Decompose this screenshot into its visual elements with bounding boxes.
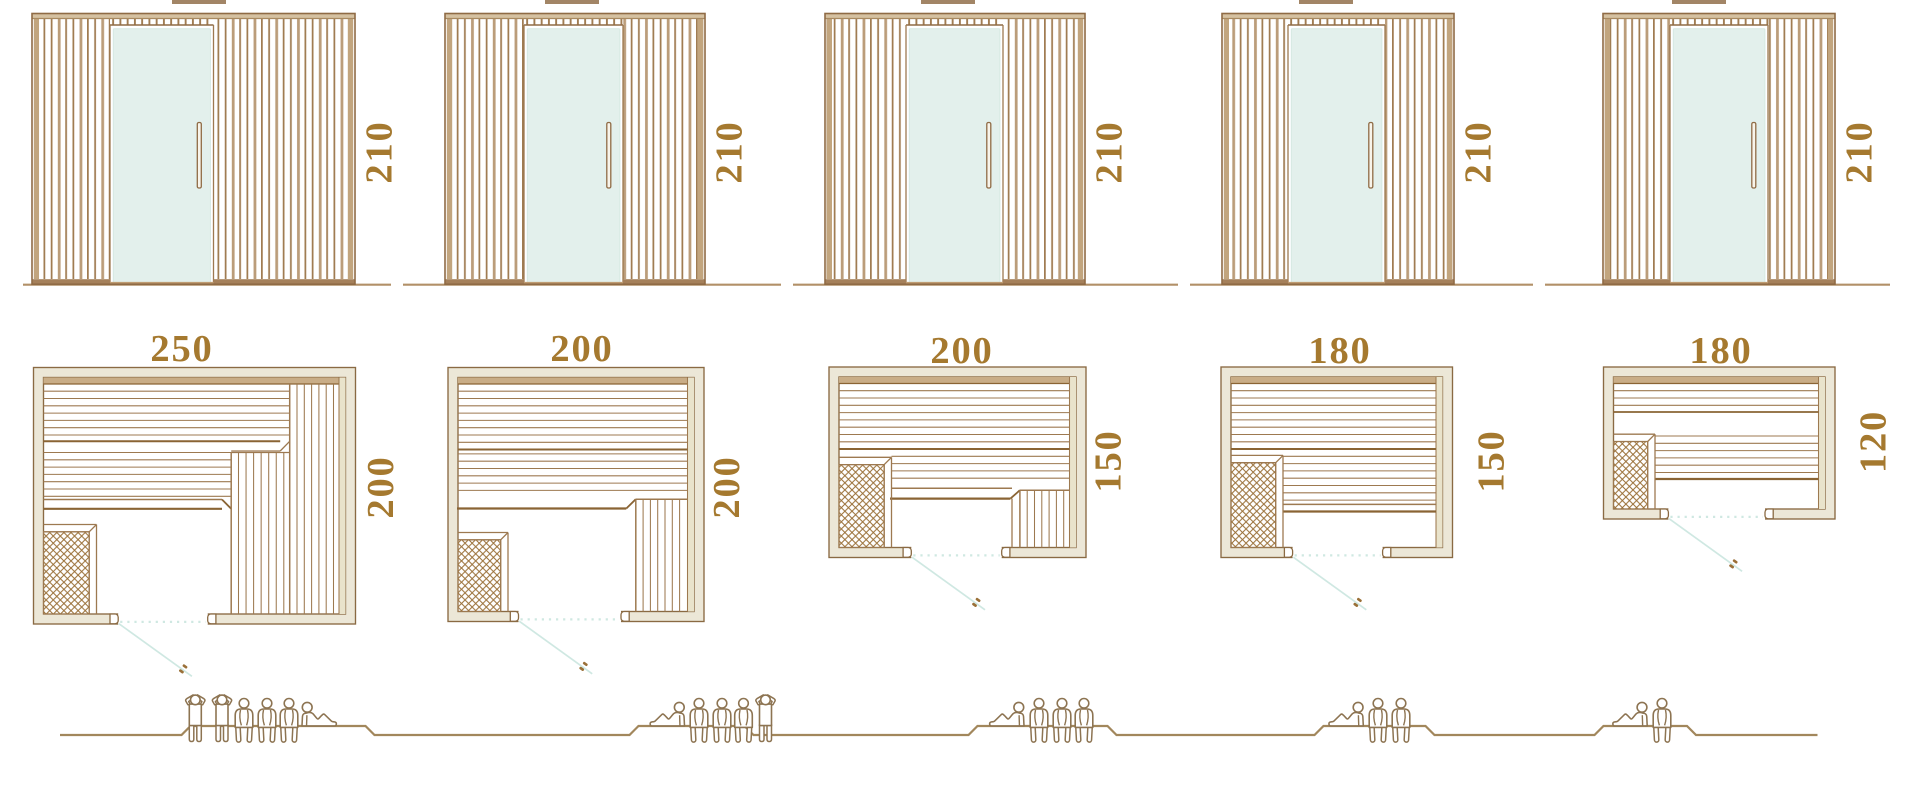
svg-text:180: 180 [1689, 330, 1752, 372]
svg-text:210: 210 [358, 120, 400, 183]
svg-text:250: 250 [150, 328, 213, 370]
svg-text:210: 210 [1838, 120, 1880, 183]
svg-text:150: 150 [1087, 429, 1129, 492]
svg-text:200: 200 [706, 455, 748, 518]
svg-text:210: 210 [1457, 120, 1499, 183]
svg-text:200: 200 [360, 455, 402, 518]
svg-text:200: 200 [930, 330, 993, 372]
svg-text:210: 210 [1088, 120, 1130, 183]
svg-text:200: 200 [550, 328, 613, 370]
svg-text:120: 120 [1852, 410, 1894, 473]
svg-text:150: 150 [1470, 429, 1512, 492]
svg-text:210: 210 [708, 120, 750, 183]
svg-text:180: 180 [1308, 330, 1371, 372]
